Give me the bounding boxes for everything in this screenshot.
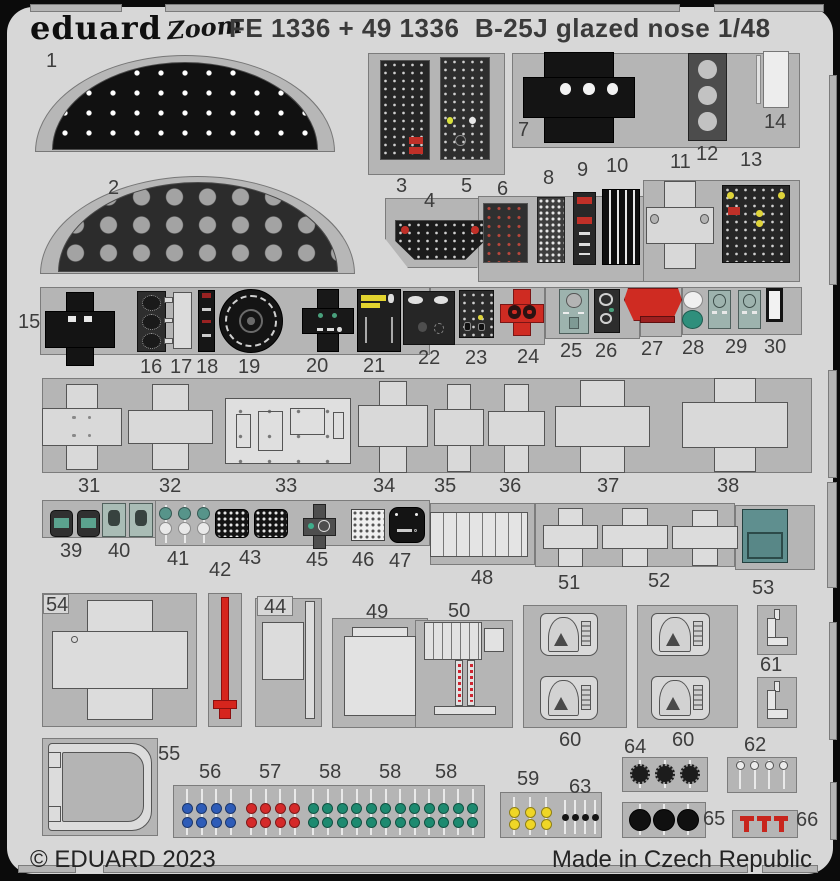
knob [680, 764, 700, 784]
seat-arrow [554, 690, 568, 710]
part-detail [290, 408, 325, 435]
part-number-label: 37 [597, 476, 619, 496]
part-detail [464, 322, 471, 330]
part-part-29a [708, 290, 731, 329]
knob [592, 814, 599, 821]
part-detail [578, 312, 584, 315]
part-part-61-bracket [764, 609, 790, 651]
part-detail [415, 513, 418, 516]
part-detail [447, 117, 454, 124]
knob [225, 817, 236, 828]
knob [159, 522, 172, 535]
part-number-label: 19 [238, 357, 260, 377]
knob [275, 817, 286, 828]
part-part-25 [559, 289, 589, 334]
part-number-label: 57 [259, 762, 281, 782]
part-detail [308, 523, 314, 529]
part-detail [756, 220, 763, 227]
part-number-label: 9 [577, 160, 588, 180]
cross-horizontal [682, 402, 788, 447]
part-detail [742, 311, 748, 314]
knob [582, 814, 589, 821]
part-part-51 [543, 508, 598, 567]
part-detail [478, 323, 485, 330]
part-detail [743, 294, 756, 308]
part-detail [401, 226, 409, 234]
part-number-label: 59 [517, 769, 539, 789]
part-part-43b [254, 509, 288, 538]
part-detail [609, 308, 614, 313]
part-detail [142, 333, 161, 349]
part-detail [388, 294, 393, 304]
part-part-22 [403, 291, 455, 345]
part-detail [583, 83, 594, 95]
part-detail [569, 317, 579, 329]
part-detail [361, 303, 379, 308]
knob [246, 817, 257, 828]
cross-horizontal [434, 409, 484, 446]
seat-arrow [666, 690, 680, 710]
part-part-44-panel [262, 622, 304, 680]
part-number-label: 20 [306, 356, 328, 376]
part-number-label: 42 [209, 560, 231, 580]
part-instr-panel-2 [58, 182, 338, 272]
part-part-50-tab [484, 628, 504, 652]
part-detail [318, 520, 330, 532]
knob [509, 807, 520, 818]
seat-panel [581, 685, 591, 710]
part-detail [579, 232, 590, 235]
part-part-56-knobs [180, 789, 238, 835]
part-detail [478, 315, 483, 320]
part-detail [471, 226, 479, 234]
part-part-5 [440, 57, 490, 160]
knob [630, 764, 650, 784]
part-detail [607, 83, 618, 95]
part-part-47 [389, 507, 425, 543]
knob [196, 817, 207, 828]
part-detail [88, 434, 91, 437]
part-number-label: 1 [46, 51, 57, 71]
part-number-label: 26 [595, 341, 617, 361]
knob [246, 803, 257, 814]
part-part-19-compass [219, 289, 283, 353]
part-part-18 [198, 290, 215, 352]
bracket-foot [767, 709, 788, 718]
knob [197, 507, 210, 520]
part-number-label: 23 [465, 348, 487, 368]
knob [424, 803, 435, 814]
part-part-52a [602, 508, 668, 567]
part-detail [258, 411, 283, 452]
part-detail [512, 310, 516, 315]
part-detail [408, 296, 423, 304]
part-detail [566, 293, 582, 308]
part-part-48 [430, 512, 528, 557]
part-part-29b [738, 290, 761, 329]
part-detail [577, 217, 593, 223]
knob [337, 817, 348, 828]
footer-copyright: © EDUARD 2023 [30, 846, 216, 874]
part-number-label: 54 [46, 595, 68, 615]
knob [380, 803, 391, 814]
part-part-11 [646, 181, 714, 269]
knob [779, 761, 788, 770]
part-part-27-base [640, 316, 675, 323]
part-detail [713, 294, 726, 308]
part-detail [84, 316, 92, 322]
part-number-label: 61 [760, 655, 782, 675]
part-detail [54, 518, 69, 528]
part-part-50-strip1 [455, 660, 463, 706]
part-part-28-bottom [682, 310, 703, 329]
knob [736, 761, 745, 770]
knob [308, 817, 319, 828]
part-number-label: 31 [78, 476, 100, 496]
part-part-54 [52, 600, 188, 720]
part-number-label: 5 [461, 176, 472, 196]
part-detail [650, 214, 659, 224]
part-part-36 [488, 384, 545, 473]
knob [211, 803, 222, 814]
part-detail [108, 510, 120, 526]
tee-stem [762, 820, 767, 832]
part-number-label: 52 [648, 571, 670, 591]
part-part-26 [594, 289, 620, 333]
cross-horizontal [128, 410, 213, 444]
edge-rail [165, 4, 680, 12]
part-part-41-pin [196, 505, 211, 543]
part-detail [560, 83, 571, 95]
part-number-label: 2 [108, 178, 119, 198]
part-number-label: 11 [670, 152, 691, 172]
fret-layer: 1234567891011121314151617181920212223242… [0, 0, 840, 881]
part-detail [395, 513, 398, 516]
knob [308, 803, 319, 814]
part-number-label: 56 [199, 762, 221, 782]
cross-horizontal [488, 411, 545, 447]
part-number-label: 8 [543, 168, 554, 188]
part-part-20 [302, 289, 354, 352]
part-part-45 [303, 504, 336, 549]
part-part-50-base [434, 706, 496, 715]
part-number-label: 12 [696, 144, 718, 164]
part-number-label: 35 [434, 476, 456, 496]
knob [395, 803, 406, 814]
part-detail [365, 317, 368, 343]
part-number-label: 65 [703, 809, 725, 829]
part-detail [164, 338, 173, 344]
knob [467, 817, 478, 828]
edge-rail [829, 75, 837, 285]
edge-rail [830, 782, 837, 840]
part-number-label: 60 [672, 730, 694, 750]
part-detail [391, 317, 394, 343]
part-detail [728, 207, 740, 215]
part-part-31 [42, 384, 122, 470]
part-part-60-seat [651, 613, 710, 656]
part-part-16 [137, 291, 166, 352]
part-number-label: 62 [744, 735, 766, 755]
cross-horizontal [45, 311, 115, 348]
part-detail [599, 293, 613, 306]
pe-sheet-page: 1234567891011121314151617181920212223242… [0, 0, 840, 881]
part-detail [164, 297, 173, 303]
part-part-35 [434, 384, 484, 472]
knob [541, 819, 552, 830]
part-detail [563, 312, 569, 315]
knob [197, 522, 210, 535]
part-number-label: 36 [499, 476, 521, 496]
part-part-66-handles [738, 813, 790, 835]
part-part-58-knobs [306, 789, 480, 835]
part-part-60-seat [540, 613, 598, 656]
part-number-label: 10 [606, 156, 628, 176]
part-part-24 [500, 289, 544, 336]
sheet-title: FE 1336 + 49 1336 B-25J glazed nose 1/48 [229, 13, 771, 44]
edge-rail [829, 622, 837, 740]
part-detail [236, 414, 251, 447]
part-number-label: 60 [559, 730, 581, 750]
cross-horizontal [500, 304, 544, 323]
part-detail [434, 323, 444, 333]
part-number-label: 25 [560, 341, 582, 361]
knob [275, 803, 286, 814]
footer-made-in: Made in Czech Republic [552, 846, 812, 874]
part-number-label: 13 [740, 150, 762, 170]
cross-horizontal [523, 77, 635, 118]
part-detail [747, 532, 782, 559]
part-part-41-pin [158, 505, 173, 543]
part-part-39b [77, 510, 100, 537]
part-part-61-bracket [764, 681, 790, 724]
part-part-42-lever [221, 597, 229, 711]
knob [395, 817, 406, 828]
part-part-6 [483, 203, 528, 263]
knob [525, 819, 536, 830]
part-detail [135, 510, 147, 526]
part-part-44-strip [305, 601, 315, 719]
part-part-60-seat [540, 676, 598, 720]
part-detail [409, 137, 423, 144]
knob [629, 809, 651, 831]
cross-horizontal [358, 405, 428, 447]
part-number-label: 7 [518, 120, 529, 140]
part-number-label: 3 [396, 176, 407, 196]
part-part-50-strip2 [467, 660, 475, 706]
part-number-label: 55 [158, 744, 180, 764]
part-part-40b [129, 503, 153, 537]
knob [677, 809, 699, 831]
part-part-28-top [683, 291, 703, 309]
knob [196, 803, 207, 814]
part-number-label: 14 [764, 112, 786, 132]
part-number-label: 43 [239, 548, 261, 568]
part-part-30 [766, 288, 783, 322]
part-part-14-strip [756, 55, 761, 104]
part-number-label: 27 [641, 339, 663, 359]
edge-rail [828, 370, 837, 478]
part-detail [727, 192, 734, 199]
knob [366, 817, 377, 828]
knob [750, 761, 759, 770]
knob [438, 803, 449, 814]
part-detail [164, 318, 173, 324]
knob [409, 817, 420, 828]
knob [289, 803, 300, 814]
knob [453, 817, 464, 828]
knob [211, 817, 222, 828]
part-number-label: 46 [352, 550, 374, 570]
part-detail [202, 293, 212, 297]
part-detail [579, 243, 590, 246]
knob [260, 817, 271, 828]
knob [653, 809, 675, 831]
part-part-37 [555, 380, 650, 473]
cross-horizontal [646, 207, 714, 244]
part-number-label: 34 [373, 476, 395, 496]
part-detail [577, 197, 593, 204]
part-part-9 [573, 192, 596, 265]
part-number-label: 45 [306, 550, 328, 570]
cross-horizontal [555, 406, 650, 447]
cross-horizontal [602, 525, 668, 550]
part-number-label: 53 [752, 578, 774, 598]
part-detail [327, 328, 334, 331]
part-part-7 [523, 52, 635, 143]
part-part-42-tip [219, 708, 231, 719]
part-detail [397, 529, 411, 532]
part-part-15 [45, 292, 115, 366]
knob [572, 814, 579, 821]
part-part-23 [459, 290, 494, 338]
part-detail [698, 60, 717, 79]
part-part-60-seat [651, 676, 710, 720]
part-detail [202, 308, 210, 311]
tee-stem [779, 820, 784, 832]
part-number-label: 24 [517, 347, 539, 367]
part-detail [418, 322, 427, 331]
part-number-label: 39 [60, 541, 82, 561]
part-detail [142, 295, 161, 311]
part-number-label: 30 [764, 337, 786, 357]
knob [337, 803, 348, 814]
part-detail [317, 328, 324, 331]
part-part-43a [215, 509, 249, 538]
part-part-50-comb [424, 622, 482, 660]
part-part-64-knobs [628, 760, 702, 788]
knob [322, 803, 333, 814]
part-part-38 [682, 378, 788, 472]
part-part-55-tab1 [48, 752, 61, 768]
part-number-label: 21 [363, 356, 385, 376]
part-number-label: 64 [624, 737, 646, 757]
part-part-39a [50, 510, 73, 537]
part-part-17 [173, 292, 192, 349]
part-detail [469, 117, 476, 124]
knob [655, 764, 675, 784]
part-part-10 [602, 189, 640, 265]
part-detail [333, 412, 344, 439]
knob [182, 803, 193, 814]
part-number-label: 28 [682, 338, 704, 358]
part-part-33 [225, 398, 351, 464]
seat-panel [693, 621, 703, 646]
part-detail [414, 529, 417, 532]
part-part-32 [128, 384, 213, 470]
seat-panel [581, 621, 591, 646]
part-number-label: 17 [170, 357, 192, 377]
knob [467, 803, 478, 814]
eduard-logo: eduard [30, 9, 162, 47]
part-number-label: 47 [389, 551, 411, 571]
knob [366, 803, 377, 814]
part-number-label: 48 [471, 568, 493, 588]
part-detail [712, 311, 718, 314]
part-number-label: 49 [366, 602, 388, 622]
part-number-label: 58 [435, 762, 457, 782]
knob [159, 507, 172, 520]
part-number-label: 41 [167, 549, 189, 569]
part-part-14 [763, 51, 789, 108]
part-detail [202, 334, 210, 337]
part-detail [72, 434, 75, 437]
knob [424, 817, 435, 828]
bracket-foot [767, 637, 788, 646]
knob [765, 761, 774, 770]
part-part-3 [380, 60, 430, 160]
knob [509, 819, 520, 830]
part-detail [361, 295, 385, 301]
part-detail [579, 253, 590, 256]
part-detail [455, 135, 466, 146]
part-part-62-forks [733, 760, 791, 789]
part-part-55-tab2 [48, 806, 61, 822]
part-detail [247, 317, 254, 324]
part-part-21 [357, 289, 401, 352]
part-number-label: 15 [18, 312, 40, 332]
knob [351, 817, 362, 828]
part-detail [698, 112, 717, 131]
part-detail [600, 313, 612, 324]
knob [525, 807, 536, 818]
part-number-label: 33 [275, 476, 297, 496]
part-number-label: 63 [569, 777, 591, 797]
part-detail [81, 518, 96, 528]
knob [453, 803, 464, 814]
part-number-label: 58 [319, 762, 341, 782]
part-number-label: 22 [418, 348, 440, 368]
part-number-label: 18 [196, 357, 218, 377]
part-part-65-knobs [628, 804, 700, 835]
part-part-55-opening [62, 752, 144, 822]
part-part-49 [344, 636, 416, 716]
part-detail [527, 310, 531, 315]
knob [409, 803, 420, 814]
knob [380, 817, 391, 828]
knob [178, 522, 191, 535]
part-part-59-knobs [506, 797, 554, 835]
knob [260, 803, 271, 814]
part-part-8 [537, 197, 565, 263]
part-detail [72, 416, 75, 419]
part-detail [756, 210, 763, 217]
part-part-34 [358, 381, 428, 473]
part-part-53 [742, 509, 788, 563]
knob [541, 807, 552, 818]
part-part-57-knobs [244, 789, 302, 835]
part-number-label: 51 [558, 573, 580, 593]
